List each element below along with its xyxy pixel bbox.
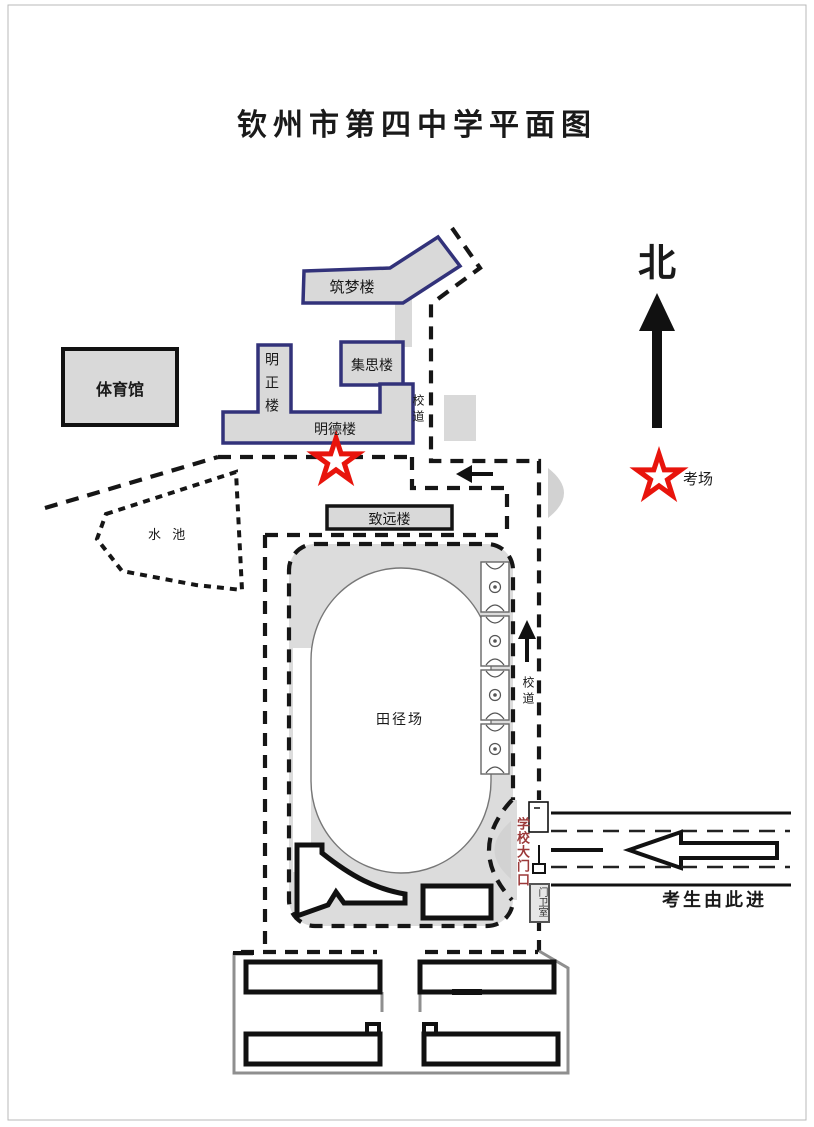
north-label: 北	[630, 232, 684, 287]
pond-label: 水 池	[148, 524, 189, 543]
campus-map-page: 钦州市第四中学平面图 北 考场 体育馆 筑梦楼 明正楼 集思楼 明德楼 致远楼 …	[0, 0, 814, 1127]
basketball-court	[481, 724, 509, 774]
legend-star-icon	[637, 454, 681, 496]
school-road-lower-label: 校道	[520, 676, 537, 708]
basketball-court	[481, 670, 509, 720]
field-strip	[293, 648, 311, 872]
mingde-label: 明德楼	[295, 419, 375, 439]
south-building	[246, 1034, 380, 1064]
mingzheng-label: 明正楼	[262, 352, 282, 421]
corridor	[395, 299, 412, 347]
road-block	[444, 395, 476, 441]
legend-exam-site-label: 考场	[683, 468, 713, 489]
north-arrow-head	[639, 293, 675, 331]
basketball-court	[481, 562, 509, 612]
basketball-court	[481, 616, 509, 666]
south-building	[424, 1034, 558, 1064]
side-entrance-semicircle	[548, 468, 564, 518]
track-field-label: 田径场	[355, 709, 445, 729]
north-path-arrow-head	[518, 620, 536, 639]
gate-barrier-base	[533, 864, 545, 873]
zhumeng-label: 筑梦楼	[310, 276, 394, 297]
field-small-building	[423, 886, 491, 918]
campus-map-drawing	[0, 0, 814, 1127]
north-arrow-shaft	[652, 329, 662, 428]
school-road-upper-label: 校道	[410, 394, 427, 426]
south-building	[246, 962, 380, 992]
south-building	[420, 962, 554, 992]
zhiyuan-label: 致远楼	[327, 509, 452, 529]
entry-note: 考生由此进	[662, 886, 767, 912]
west-arrow-head	[456, 465, 472, 483]
entry-direction-arrow	[629, 832, 777, 868]
boundary-nw	[45, 457, 218, 508]
page-title: 钦州市第四中学平面图	[237, 100, 567, 144]
school-gate-label: 学校大门口	[513, 817, 532, 887]
gym-label: 体育馆	[63, 376, 177, 400]
jisi-label: 集思楼	[341, 355, 403, 375]
guard-room-label: 门卫室	[534, 887, 549, 917]
